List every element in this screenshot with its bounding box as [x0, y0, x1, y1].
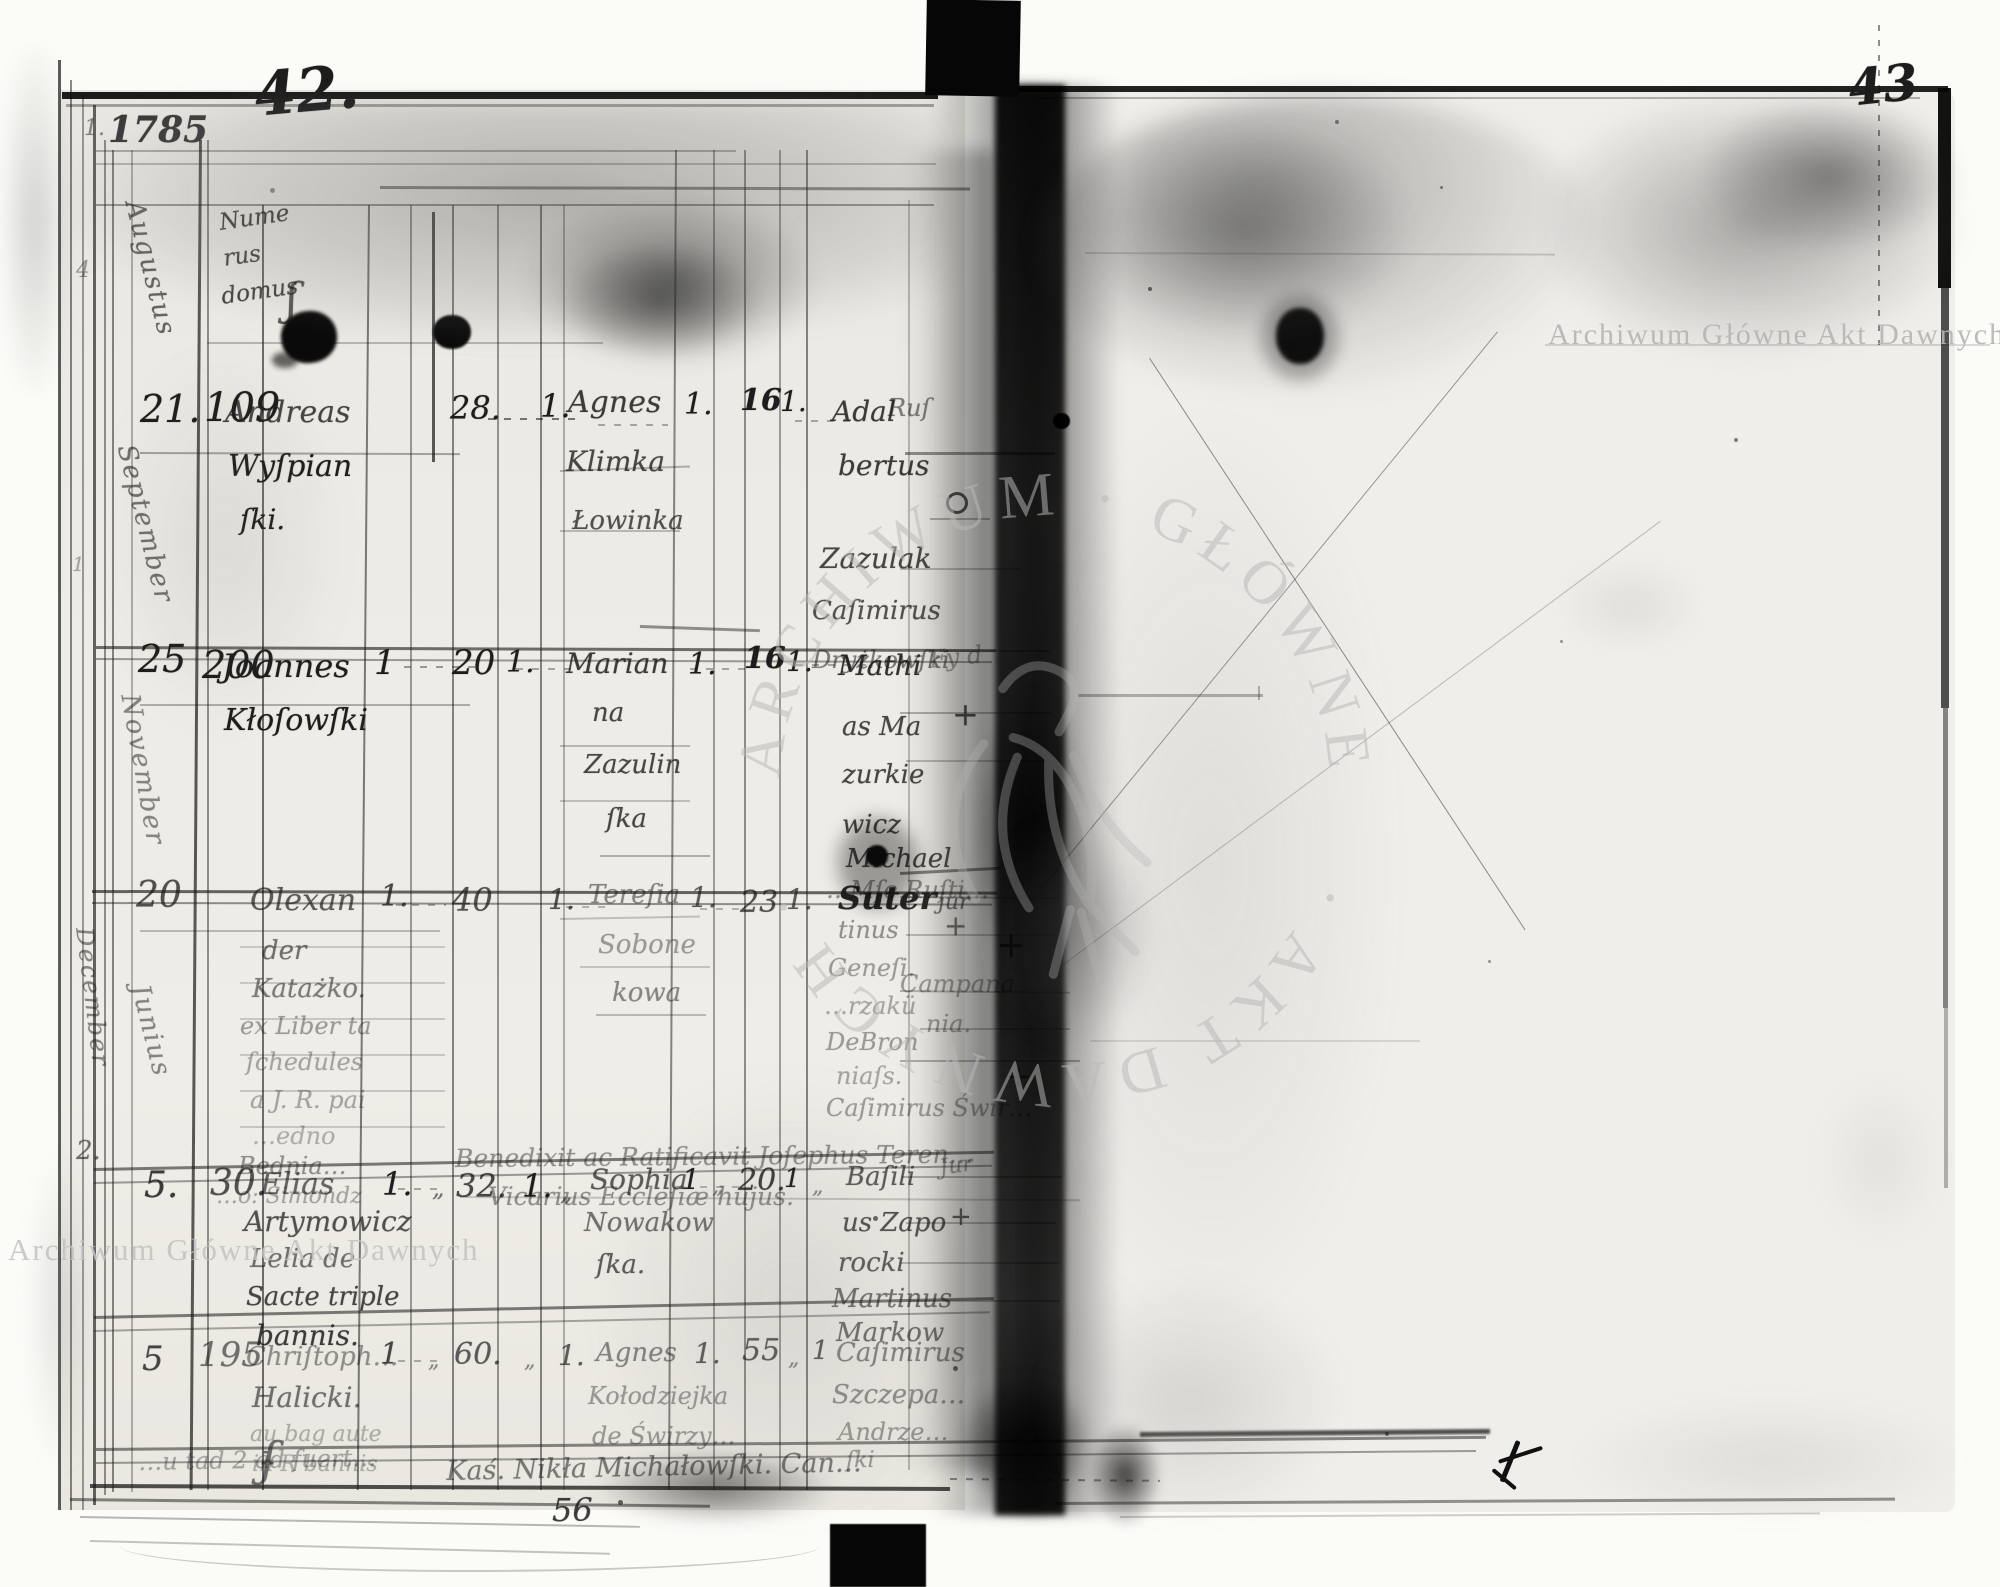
rule-line	[96, 163, 936, 165]
groom-name: Elias	[260, 1170, 334, 1200]
bride-name: Marian	[566, 650, 668, 678]
numerus-header-line: rus	[222, 243, 262, 271]
bride-name: Sobone	[598, 932, 696, 958]
bride-name: Tereſia	[588, 882, 680, 908]
rule-line	[96, 204, 934, 206]
ditto-mark: „	[524, 1350, 535, 1372]
rule-line	[58, 60, 61, 1510]
row-day: 20	[136, 878, 182, 914]
witness-side-note: Ruſ	[888, 396, 930, 420]
bride-age: 55	[742, 1336, 780, 1366]
bride-name: ſka	[606, 806, 647, 832]
speck	[1335, 120, 1339, 124]
groom-name: ſki.	[240, 506, 285, 534]
groom-name: Katażko.	[252, 976, 366, 1002]
bride-age: 16	[740, 386, 782, 416]
rule-line	[104, 140, 106, 1495]
cell-mark: 1.	[380, 882, 409, 912]
groom-age: 32.	[456, 1170, 507, 1202]
witness-name: Szczepa…	[832, 1382, 965, 1408]
rule-line	[112, 150, 114, 1492]
eagle-icon	[922, 651, 1169, 1003]
speck	[873, 1216, 878, 1221]
groom-name: ſchedules	[246, 1050, 363, 1074]
page-edge	[62, 92, 938, 99]
page-edge	[1018, 86, 1948, 92]
cell-mark: 1.	[522, 1170, 553, 1202]
page-edge	[1943, 708, 1948, 1008]
cell-mark: 1.	[558, 1342, 585, 1370]
rule-line	[600, 855, 710, 857]
bride-name: de Świrzy…	[592, 1424, 736, 1448]
cell-mark: 1	[374, 646, 396, 680]
cell-mark: 1.	[382, 1168, 413, 1200]
bride-age: 20.	[738, 1166, 786, 1196]
rule-line	[93, 105, 96, 1505]
groom-name: der	[262, 938, 306, 964]
cell-mark: 1.	[780, 388, 807, 416]
register-scan: 42. 43 1. 1785 Augustus Nume rus domus ʃ…	[0, 0, 2000, 1587]
page-edge	[1040, 97, 1920, 99]
rule-line	[580, 966, 710, 968]
rule-line	[560, 800, 690, 802]
page-edge	[120, 1520, 820, 1572]
speck	[953, 1366, 958, 1371]
speck	[1488, 960, 1491, 963]
cell-mark: 1	[380, 1340, 399, 1370]
margin-mark: 1	[72, 554, 85, 574]
bride-name: ſka.	[596, 1252, 645, 1278]
spine-strap-bottom	[830, 1524, 926, 1587]
groom-name: …edno	[252, 1124, 335, 1148]
speck	[1385, 1432, 1389, 1436]
groom-age: 28.	[450, 392, 501, 424]
left-page-number: 42.	[252, 57, 361, 126]
svg-text:· AKT DAWNYCH ·: · AKT DAWNYCH ·	[745, 875, 1365, 1121]
leader-dots	[598, 424, 668, 426]
rule-line	[902, 1176, 1062, 1178]
groom-name: Andreas	[225, 398, 351, 428]
cell-mark: 1.	[506, 648, 535, 678]
groom-name: Joannes	[222, 650, 350, 682]
witness-name: Baſili	[846, 1164, 915, 1190]
rule-line	[560, 745, 690, 747]
jurament-mark: Jur	[938, 1153, 974, 1179]
rule-line	[207, 342, 603, 344]
row-domus: 30.	[210, 1166, 267, 1202]
bride-name: na	[592, 700, 624, 726]
bride-name: Klimka	[566, 448, 665, 476]
cell-mark: 1	[784, 1166, 801, 1192]
row-day: 5	[142, 1342, 164, 1376]
groom-age: 40	[452, 884, 493, 916]
page-edge	[1938, 88, 1951, 288]
ditto-mark: „	[788, 1348, 799, 1370]
bride-name: Zazulin	[584, 752, 681, 778]
speck	[1440, 186, 1443, 189]
cell-mark: 1.	[694, 1340, 721, 1368]
cell-mark: 1.	[684, 390, 713, 420]
page-edge	[1944, 1008, 1948, 1188]
cell-mark: 1.	[540, 390, 571, 422]
archive-watermark-top-right: Archiwum Główne Akt Dawnych	[1548, 318, 2000, 352]
page-edge	[1120, 1512, 1820, 1518]
year-label: 1785	[108, 112, 208, 148]
bottom-sheet-number: 56	[552, 1494, 593, 1526]
rule-line	[596, 1014, 706, 1016]
spine-strap-top	[925, 0, 1021, 97]
ink-blot	[1276, 308, 1324, 364]
speck	[270, 188, 275, 193]
rule-line	[131, 150, 133, 1492]
speck	[1148, 287, 1152, 291]
right-page-number: 43	[1846, 57, 1920, 114]
groom-age: 60.	[454, 1340, 502, 1370]
groom-name: Kłoſowſki	[224, 706, 368, 736]
cell-mark: 1	[682, 1166, 700, 1194]
ditto-mark: „	[432, 1176, 444, 1200]
archive-seal-watermark: ARCHIWUM · GŁÓWNE · AKT DAWNYCH ·	[695, 430, 1415, 1150]
margin-mark: 1.	[84, 118, 105, 140]
bottom-flourish: ʄ	[260, 1436, 277, 1482]
witness-name: Andrze…	[838, 1420, 948, 1444]
bride-name: kowa	[612, 980, 681, 1006]
groom-name: Halicki.	[252, 1384, 362, 1412]
groom-name: Chriſtoph…	[246, 1344, 399, 1370]
rule-line	[900, 1262, 1060, 1264]
speck	[1734, 438, 1738, 442]
cross-mark: +	[950, 1204, 972, 1230]
row-day: 5.	[144, 1168, 178, 1204]
ditto-mark: „	[560, 1180, 572, 1204]
witness-name: Adal	[832, 398, 896, 426]
witness-name: Caſimirus	[836, 1340, 965, 1366]
bride-name: Agnes	[596, 1340, 677, 1366]
groom-name: Olexan	[250, 886, 356, 916]
ditto-mark: „	[712, 1176, 723, 1198]
page-edge	[66, 104, 934, 107]
margin-mark: 4	[76, 260, 90, 282]
cell-mark: 1	[812, 1338, 829, 1364]
groom-name: Wyſpian	[228, 452, 352, 482]
witness-name: us Zapo	[842, 1210, 946, 1236]
archive-watermark-bottom-left: Archiwum Główne Akt Dawnych	[8, 1232, 480, 1268]
ditto-mark: „	[428, 1350, 439, 1372]
rule-line	[140, 930, 440, 932]
ink-blot	[433, 315, 471, 349]
ditto-mark: „	[812, 1176, 823, 1198]
bottom-fragment: …u tad 2 ad fuert…	[138, 1446, 376, 1474]
bride-name: Łowinka	[572, 508, 684, 534]
seal-text-bottom: · AKT DAWNYCH ·	[745, 875, 1365, 1121]
witness-name: Martinus	[832, 1286, 952, 1312]
groom-age: 20	[452, 646, 495, 680]
groom-name: ex Liber ta	[240, 1014, 372, 1038]
rule-line	[70, 80, 72, 1510]
row-day: 25	[138, 640, 186, 678]
witness-name: rocki	[838, 1250, 905, 1276]
speck	[618, 1500, 623, 1505]
rule-line	[410, 205, 412, 1490]
row-day: 21.	[140, 390, 200, 428]
rule-line	[82, 95, 84, 1510]
ink-blot	[272, 352, 298, 368]
speck	[1560, 640, 1563, 643]
groom-name: Sacte triple	[246, 1284, 400, 1310]
groom-name: a J. R. pai	[250, 1088, 366, 1112]
bride-name: Agnes	[568, 388, 661, 418]
ink-blot	[1053, 413, 1070, 429]
bride-name: Kołodziejka	[588, 1384, 728, 1408]
margin-mark: 2.	[76, 1138, 101, 1164]
bride-name: Nowakow	[584, 1210, 714, 1236]
bride-name: Sophia	[590, 1166, 688, 1194]
page-edge	[90, 1540, 610, 1555]
cell-mark: 1.	[548, 886, 575, 914]
